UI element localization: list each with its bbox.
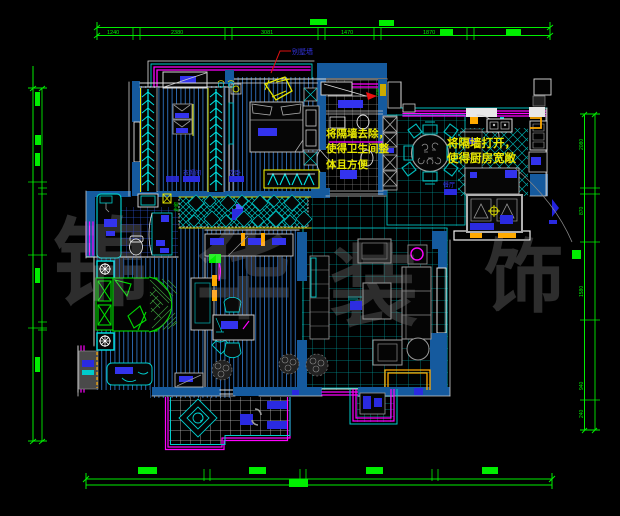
svg-text:体且方便: 体且方便 <box>326 158 368 171</box>
svg-text:衣帽间: 衣帽间 <box>183 169 201 177</box>
svg-text:3081: 3081 <box>261 30 273 36</box>
svg-text:1240: 1240 <box>107 30 119 36</box>
svg-text:870: 870 <box>579 206 585 215</box>
svg-text:别墅墙: 别墅墙 <box>292 47 313 56</box>
svg-text:华: 华 <box>196 224 292 331</box>
svg-text:2080: 2080 <box>579 139 585 150</box>
svg-text:240: 240 <box>579 409 585 418</box>
svg-text:使得卫生间整: 使得卫生间整 <box>325 142 389 155</box>
svg-text:装: 装 <box>330 241 418 338</box>
svg-text:将隔墙去除，: 将隔墙去除， <box>326 127 389 140</box>
svg-text:使得厨房宽敞: 使得厨房宽敞 <box>446 151 516 165</box>
svg-text:208: 208 <box>375 88 380 96</box>
svg-text:锦: 锦 <box>53 211 149 318</box>
svg-text:1870: 1870 <box>423 30 435 36</box>
svg-text:1580: 1580 <box>579 286 585 297</box>
svg-text:饰: 饰 <box>484 235 564 323</box>
svg-text:餐厅: 餐厅 <box>443 181 455 189</box>
svg-text:940: 940 <box>579 381 585 390</box>
svg-text:将隔墙打开，: 将隔墙打开， <box>447 136 516 150</box>
svg-text:2380: 2380 <box>171 30 183 36</box>
svg-text:走廊: 走廊 <box>173 202 180 212</box>
svg-text:次卧: 次卧 <box>229 169 241 177</box>
svg-text:1470: 1470 <box>341 30 353 36</box>
